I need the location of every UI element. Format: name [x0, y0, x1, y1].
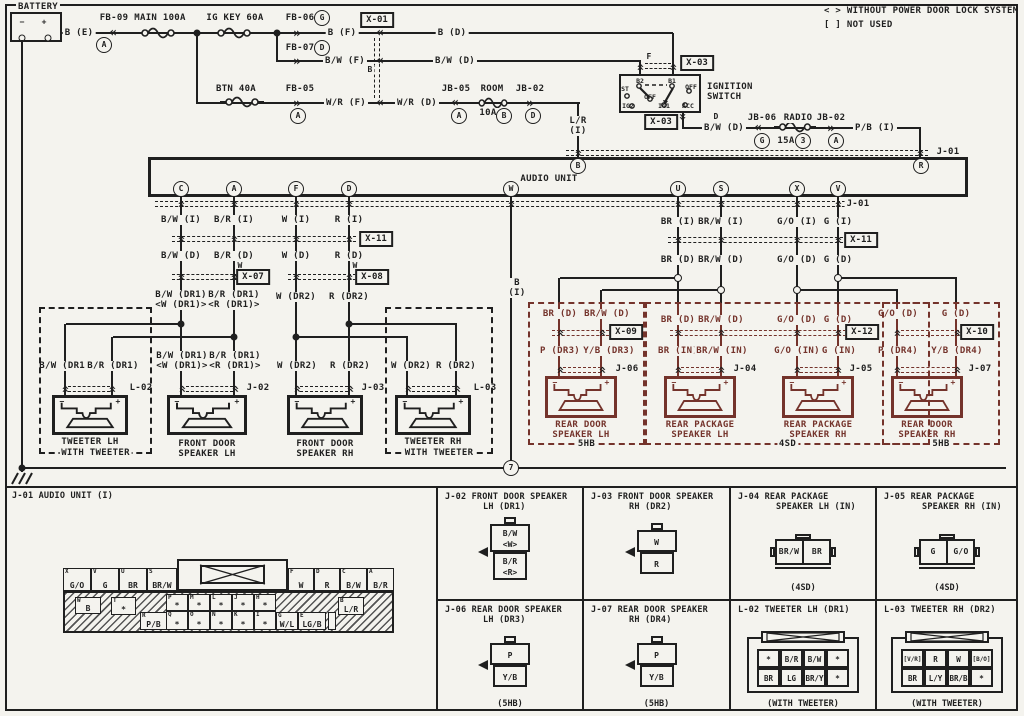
connector-arrow-icon	[478, 547, 488, 557]
connector-cell: R	[640, 552, 674, 574]
wire-label: R (D)	[333, 251, 366, 261]
connector-cell: *	[826, 649, 849, 668]
fuse-label: FB-07	[284, 43, 317, 53]
j01-pin-cell-M: M*	[188, 594, 210, 611]
connector-chevron-icon: «	[175, 200, 188, 208]
connector-chevron-icon: «	[175, 273, 188, 281]
connector-cell: *	[757, 649, 780, 668]
junction-dot	[674, 274, 682, 282]
cell-title-j03: J-03 FRONT DOOR SPEAKER	[591, 492, 713, 502]
wire-line	[196, 32, 198, 104]
connector-chevron-icon: «	[228, 273, 241, 281]
circled-terminal-label: 7	[503, 460, 519, 476]
wire-label: P/B (I)	[853, 123, 897, 133]
circled-terminal-label: G	[314, 10, 330, 26]
j01-pin-cell-A: AB/R	[367, 568, 394, 591]
junction-dot	[834, 274, 842, 282]
wire-label: B (F)	[326, 28, 359, 38]
audio-unit-label: AUDIO UNIT	[518, 174, 579, 184]
audio-unit-pin-U: U	[670, 181, 686, 197]
wire-label: G (D)	[822, 255, 855, 265]
j01-pin-cell-W: WB	[75, 597, 101, 614]
group-box-label: 5HB	[576, 439, 597, 449]
speaker-glyph-icon	[291, 399, 359, 431]
wire-label: B/W (DR1) <W (DR1)>	[153, 290, 208, 310]
wire-label: R (DR2)	[327, 292, 371, 302]
cell-subtitle-j05: SPEAKER RH (IN)	[922, 502, 1002, 512]
group-box-label: 5HB	[930, 439, 951, 449]
connector-cell: B/W	[803, 649, 826, 668]
wire-label: B/W (DR1) <W (DR1)>	[154, 351, 209, 371]
wire-line	[5, 486, 1018, 488]
connector-cell: B/R	[780, 649, 803, 668]
connector-cell: [V/R]	[901, 649, 924, 668]
cell-caption-j05: (4SD)	[934, 583, 960, 593]
connector-chevron-icon: «	[290, 200, 303, 208]
audio-unit-pin-F: F	[288, 181, 304, 197]
connector-chevron-icon: «	[715, 236, 728, 244]
junction-dot	[293, 334, 300, 341]
connector-cell: L/Y	[924, 668, 947, 687]
ignition-switch-label: IGNITION SWITCH	[705, 82, 755, 102]
wire-label: B/W (I)	[159, 215, 203, 225]
cell-caption-j04: (4SD)	[790, 583, 816, 593]
connector-chevron-icon: «	[228, 235, 241, 243]
wire-label: W/R (D)	[395, 98, 439, 108]
fuse-label: MAIN 100A	[132, 13, 187, 23]
harness-dashed-line	[186, 386, 233, 392]
j01-pin-cell-I: I*	[254, 611, 276, 630]
connector-chevron-icon: «	[677, 113, 690, 121]
ignition-terminal-ST: ST	[621, 85, 629, 93]
connector-chevron-icon: «	[672, 236, 685, 244]
junction-label: JB-02	[514, 84, 547, 94]
j01-pin-cell-F: FW	[288, 568, 314, 591]
crossed-box-x-icon	[767, 633, 839, 641]
connector-arrow-icon	[625, 660, 635, 670]
connector-cell: BR/W	[777, 547, 801, 557]
connector-chevron-icon: «	[791, 200, 804, 208]
speaker-name: FRONT DOOR SPEAKER LH	[176, 439, 237, 459]
battery-post	[45, 35, 52, 42]
wire-label: W (D)	[280, 251, 313, 261]
circled-terminal-label: 3	[795, 133, 811, 149]
harness-dashed-line	[172, 236, 356, 242]
connector-chevron-icon: «	[832, 236, 845, 244]
audio-unit-pin-R: R	[913, 158, 929, 174]
connector-label: J-02	[245, 383, 272, 393]
speaker-name: FRONT DOOR SPEAKER RH	[294, 439, 355, 459]
connector-box-label: X-11	[844, 232, 878, 248]
cell-subtitle-j04: SPEAKER LH (IN)	[776, 502, 856, 512]
connector-chevron-icon: «	[832, 200, 845, 208]
audio-unit-pin-C: C	[173, 181, 189, 197]
j01-pin-cell-L: L*	[210, 594, 232, 611]
junction-dot	[346, 321, 353, 328]
connector-cell: W	[637, 530, 677, 552]
junction-dot	[717, 286, 725, 294]
j01-pin-cell-R: RP/B	[140, 612, 167, 630]
crossed-box-x-icon	[200, 565, 265, 584]
wire-label: B/R (D)	[212, 251, 256, 261]
junction-dot	[194, 30, 201, 37]
audio-unit-pin-V: V	[830, 181, 846, 197]
wire-line	[955, 278, 957, 304]
group-box	[385, 307, 493, 454]
j01-pin-cell-D: DR	[314, 568, 340, 591]
connector-chevron-icon: «	[634, 63, 647, 71]
cell-caption-j06: (5HB)	[497, 699, 523, 709]
connector-chevron-icon: «	[175, 235, 188, 243]
wire-label: F	[644, 52, 653, 62]
j01-pin-cell-G: GW/L	[276, 612, 298, 630]
fuse-icon	[220, 95, 264, 109]
connector-chevron-icon: «	[291, 385, 304, 393]
j01-pin-cell-T: T*	[111, 597, 136, 615]
cell-title-l03: L-03 TWEETER RH (DR2)	[884, 605, 996, 615]
connector-nub	[831, 547, 836, 557]
wire-line	[276, 32, 278, 62]
cell-subtitle-j07: RH (DR4)	[629, 615, 672, 625]
junction-dot	[19, 465, 26, 472]
audio-unit-pin-A: A	[226, 181, 242, 197]
group-box-label: 4SD	[777, 439, 798, 449]
wire-line	[5, 4, 7, 711]
fuse-label: RADIO	[782, 113, 815, 123]
wire-line	[5, 4, 1018, 6]
j01-pin-cell-C: CB/W	[340, 568, 367, 591]
junction-dot	[274, 30, 281, 37]
fuse-label: 15A	[775, 136, 796, 146]
j01-pin-cell-N: N*	[210, 611, 232, 630]
j01-pin-cell-P: P*	[166, 594, 188, 611]
connector-chevron-icon: «	[376, 27, 384, 40]
connector-base	[919, 567, 975, 569]
j01-pin-cell-B: BL/R	[338, 597, 364, 615]
wire-line	[797, 289, 898, 291]
connector-cell: [B/O]	[970, 649, 993, 668]
connector-cell: BR/B	[947, 668, 970, 687]
connector-cell: P	[637, 643, 677, 665]
connector-chevron-icon: «	[109, 27, 117, 40]
fuse-label: FB-05	[284, 84, 317, 94]
connector-chevron-icon: «	[451, 97, 459, 110]
circled-terminal-label: D	[314, 40, 330, 56]
wire-label: D	[711, 112, 720, 122]
connector-cell: B/W <W>	[490, 524, 530, 552]
connector-arrow-icon	[478, 660, 488, 670]
legend-line-1: < > WITHOUT POWER DOOR LOCK SYSTEM	[822, 6, 1020, 16]
connector-chevron-icon: «	[290, 273, 303, 281]
group-box-label: WITH TWEETER	[403, 448, 476, 458]
wire-line	[21, 40, 23, 468]
ignition-terminal-B1: B1	[668, 77, 676, 85]
connector-chevron-icon: «	[754, 122, 762, 135]
connector-cell: Y/B	[493, 665, 527, 687]
fuse-icon	[136, 26, 180, 40]
connector-chevron-icon: «	[176, 385, 189, 393]
connector-chevron-icon: «	[376, 97, 384, 110]
wiring-diagram-canvas: < > WITHOUT POWER DOOR LOCK SYSTEM [ ] N…	[0, 0, 1024, 716]
connector-chevron-icon: «	[228, 200, 241, 208]
j01-pin-cell-K: K*	[232, 611, 254, 630]
connector-chevron-icon: «	[343, 200, 356, 208]
wire-line	[677, 197, 679, 303]
wire-label: G/O (I)	[775, 217, 819, 227]
connector-tab-j03	[651, 523, 663, 530]
j01-pin-cell-U: UBR	[119, 568, 147, 591]
connector-cell: *	[826, 668, 849, 687]
wire-label: B/W (D)	[433, 56, 477, 66]
wire-line	[1016, 4, 1018, 711]
legend-line-2: [ ] NOT USED	[822, 20, 895, 30]
harness-dashed-line	[668, 237, 843, 243]
connector-chevron-icon: «	[572, 149, 585, 157]
wire-label: BR/W (D)	[696, 255, 746, 265]
cell-title-j07: J-07 REAR DOOR SPEAKER	[591, 605, 708, 615]
group-box	[882, 302, 1000, 445]
cell-subtitle-j02: LH (DR1)	[483, 502, 526, 512]
wire-label: B (I)	[506, 278, 527, 298]
connector-chevron-icon: «	[344, 385, 357, 393]
connector-label: J-01	[935, 147, 962, 157]
wire-label: B (E)	[63, 28, 96, 38]
wire-label: BR (I)	[659, 217, 697, 227]
wire-line	[510, 197, 512, 468]
connector-box-label: X-03	[680, 55, 714, 71]
connector-chevron-icon: «	[229, 385, 242, 393]
connector-cell: BR/Y	[803, 668, 826, 687]
cell-title-j06: J-06 REAR DOOR SPEAKER	[445, 605, 562, 615]
connector-divider	[946, 539, 948, 565]
connector-box-label: X-08	[355, 269, 389, 285]
wire-label: B/W (F)	[323, 56, 367, 66]
connector-tab-j07	[651, 636, 663, 643]
connector-chevron-icon: «	[827, 122, 835, 135]
j01-pin-cell-Q: Q*	[166, 611, 188, 630]
connector-chevron-icon: «	[343, 273, 356, 281]
audio-unit-pin-B: B	[570, 158, 586, 174]
battery-minus-terminal: −	[20, 18, 25, 27]
j01-pin-cell-H: H*	[254, 594, 276, 611]
connector-chevron-icon: «	[293, 97, 301, 110]
junction-dot	[231, 334, 238, 341]
cell-caption-l02: (WITH TWEETER)	[767, 699, 839, 709]
connector-cell: *	[970, 668, 993, 687]
j01-pin-cell-J: J*	[232, 594, 254, 611]
wire-label: W (DR2)	[274, 292, 318, 302]
j01-pin-cell-S: SBR/W	[147, 568, 177, 591]
wire-label: R (I)	[333, 215, 366, 225]
ignition-terminal-OFF: OFF	[685, 83, 697, 91]
group-box	[39, 307, 152, 454]
j01-pin-cell-V: VG	[91, 568, 119, 591]
wire-label: G/O (D)	[775, 255, 819, 265]
fuse-label: ROOM	[479, 84, 506, 94]
j01-pin-cell-blank	[328, 612, 336, 630]
connector-chevron-icon: «	[715, 200, 728, 208]
connector-cell: W	[947, 649, 970, 668]
j01-pin-cell-E: ELG/B	[298, 612, 326, 630]
audio-unit-pin-S: S	[713, 181, 729, 197]
wire-line	[602, 289, 722, 291]
harness-dashed-line	[155, 201, 845, 207]
wire-line	[436, 599, 1018, 601]
ignition-terminal-IG2: IG2	[622, 102, 634, 110]
ignition-terminal-B2: B2	[636, 77, 644, 85]
wire-line	[558, 278, 560, 304]
wire-label: R (DR2)	[328, 361, 372, 371]
group-box-label: WITH TWEETER	[59, 448, 132, 458]
wire-label: L/R (I)	[567, 116, 588, 136]
j01-pin-cell-X: XG/O	[63, 568, 91, 591]
cell-title-j05: J-05 REAR PACKAGE	[884, 492, 974, 502]
cell-title-l02: L-02 TWEETER LH (DR1)	[738, 605, 850, 615]
fuse-label: BTN 40A	[214, 84, 258, 94]
cell-title-j04: J-04 REAR PACKAGE	[738, 492, 828, 502]
group-box	[528, 302, 645, 445]
connector-chevron-icon: «	[293, 27, 301, 40]
junction-dot	[793, 286, 801, 294]
cell-subtitle-j03: RH (DR2)	[629, 502, 672, 512]
wire-label: B/R (DR1) <R (DR1)>	[207, 351, 262, 371]
wire-label: B/R (DR1) <R (DR1)>	[206, 290, 261, 310]
connector-cell: BR	[757, 668, 780, 687]
connector-label: J-01	[845, 199, 872, 209]
circled-terminal-label: B	[496, 108, 512, 124]
crossed-box-x-icon	[911, 633, 983, 641]
audio-unit-pin-X: X	[789, 181, 805, 197]
connector-tab-j02	[504, 517, 516, 524]
wire-label: W/R (F)	[324, 98, 368, 108]
battery-label: BATTERY	[16, 2, 60, 12]
harness-dashed-line	[566, 150, 928, 156]
connector-cell: Y/B	[640, 665, 674, 687]
junction-dot	[178, 321, 185, 328]
audio-unit-pin-W: W	[503, 181, 519, 197]
wire-label: B (D)	[436, 28, 469, 38]
battery-plus-terminal: +	[42, 18, 47, 27]
connector-tab-j06	[504, 636, 516, 643]
ignition-terminal-OFF: OFF	[644, 93, 656, 101]
connector-chevron-icon: «	[343, 235, 356, 243]
wire-label: B/R (I)	[212, 215, 256, 225]
connector-arrow-icon	[625, 547, 635, 557]
connector-nub	[975, 547, 980, 557]
wire-label: BR (D)	[659, 255, 697, 265]
wire-label: B/W (D)	[159, 251, 203, 261]
connector-cell: R	[924, 649, 947, 668]
connector-divider	[802, 539, 804, 565]
cell-title-j02: J-02 FRONT DOOR SPEAKER	[445, 492, 567, 502]
j01-pin-cell-O: O*	[188, 611, 210, 630]
wire-label: BR/W (I)	[696, 217, 746, 227]
junction-label: JB-06	[746, 113, 779, 123]
wire-line	[5, 709, 1018, 711]
wire-line	[560, 277, 679, 279]
connector-cell: B/R <R>	[493, 552, 527, 580]
wire-line	[837, 197, 839, 303]
wire-line	[838, 277, 957, 279]
connector-cell: LG	[780, 668, 803, 687]
fuse-icon	[212, 26, 256, 40]
connector-box-label: X-11	[359, 231, 393, 247]
harness-dashed-line	[300, 386, 348, 392]
fuse-label: FB-06	[284, 13, 317, 23]
cell-caption-l03: (WITH TWEETER)	[911, 699, 983, 709]
connector-cell: BR	[901, 668, 924, 687]
connector-chevron-icon: «	[505, 200, 518, 208]
connector-chevron-icon: «	[376, 55, 384, 68]
connector-chevron-icon: «	[791, 236, 804, 244]
wire-label: G (I)	[822, 217, 855, 227]
audio-unit-pin-D: D	[341, 181, 357, 197]
fuse-label: IG KEY 60A	[204, 13, 265, 23]
cell-caption-j07: (5HB)	[644, 699, 670, 709]
connector-chevron-icon: «	[672, 200, 685, 208]
cell-subtitle-j06: LH (DR3)	[483, 615, 526, 625]
fuse-label: FB-09	[98, 13, 131, 23]
connector-label: J-03	[360, 383, 387, 393]
connector-cell: BR	[810, 547, 824, 557]
speaker-glyph-icon	[171, 399, 243, 431]
connector-chevron-icon: «	[526, 97, 534, 110]
wire-label: B	[365, 65, 374, 75]
wire-label: W (DR2)	[275, 361, 319, 371]
connector-chevron-icon: «	[667, 63, 680, 71]
ignition-terminal-ACC: ACC	[682, 102, 694, 110]
connector-chevron-icon: «	[293, 55, 301, 68]
j01-pinout-title: J-01 AUDIO UNIT (I)	[12, 491, 113, 501]
connector-cell: G	[928, 547, 937, 557]
connector-chevron-icon: «	[914, 149, 927, 157]
connector-base	[775, 567, 831, 569]
wire-label: W (I)	[280, 215, 313, 225]
junction-label: JB-05	[440, 84, 473, 94]
connector-cell: G/O	[951, 547, 970, 557]
connector-box-label: X-03	[644, 114, 678, 130]
wire-label: B/W (D)	[702, 123, 746, 133]
connector-cell: P	[490, 643, 530, 665]
ignition-terminal-IG1: IG1	[658, 102, 670, 110]
connector-chevron-icon: «	[290, 235, 303, 243]
